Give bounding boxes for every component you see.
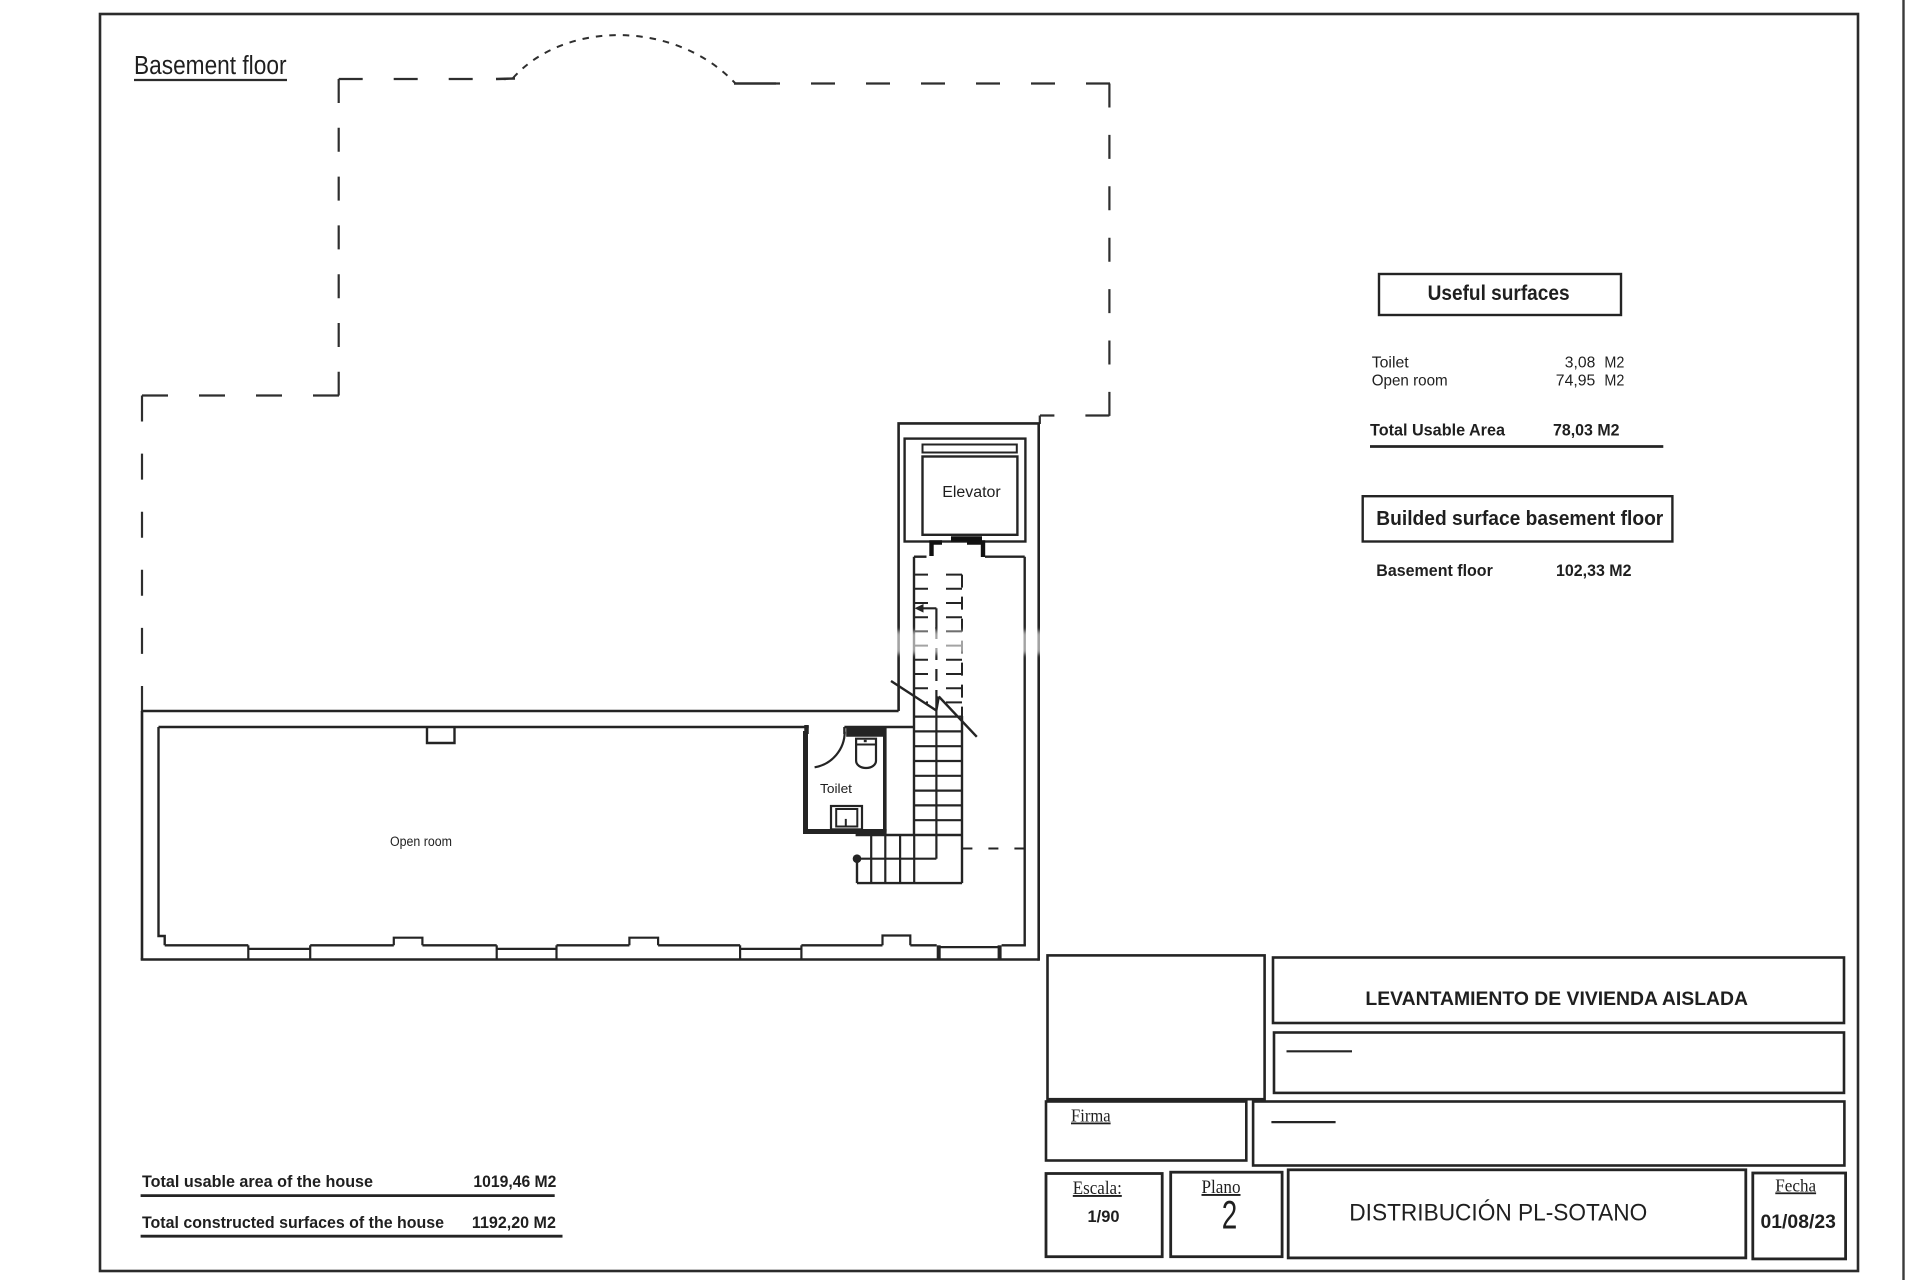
svg-text:Total constructed surfaces of: Total constructed surfaces of the house — [142, 1214, 444, 1232]
svg-text:1192,20 M2: 1192,20 M2 — [472, 1214, 556, 1232]
svg-text:Escala:: Escala: — [1073, 1178, 1122, 1199]
svg-text:Fecha: Fecha — [1775, 1175, 1816, 1195]
svg-text:LEVANTAMIENTO DE VIVIENDA AISL: LEVANTAMIENTO DE VIVIENDA AISLADA — [1365, 988, 1748, 1010]
svg-text:Elevator: Elevator — [942, 484, 1001, 501]
svg-text:3,08: 3,08 — [1565, 355, 1596, 372]
svg-text:01/08/23: 01/08/23 — [1761, 1212, 1836, 1233]
svg-text:Open room: Open room — [390, 834, 452, 849]
svg-text:Total usable area of the house: Total usable area of the house — [142, 1173, 373, 1191]
svg-text:2: 2 — [1222, 1194, 1238, 1238]
svg-text:Builded surface basement floor: Builded surface basement floor — [1376, 508, 1663, 530]
svg-text:74,95: 74,95 — [1556, 373, 1596, 390]
svg-text:102,33 M2: 102,33 M2 — [1556, 562, 1632, 580]
svg-text:Firma: Firma — [1071, 1106, 1111, 1126]
svg-text:Open room: Open room — [1372, 373, 1448, 390]
svg-text:M2: M2 — [1604, 373, 1624, 390]
svg-text:M2: M2 — [1604, 355, 1624, 372]
svg-text:DISTRIBUCIÓN PL-SOTANO: DISTRIBUCIÓN PL-SOTANO — [1349, 1200, 1647, 1227]
svg-text:Total Usable Area: Total Usable Area — [1370, 422, 1506, 440]
svg-text:78,03 M2: 78,03 M2 — [1553, 422, 1620, 440]
svg-text:Basement floor: Basement floor — [134, 52, 287, 80]
svg-text:1/90: 1/90 — [1088, 1208, 1120, 1226]
svg-text:Toilet: Toilet — [820, 782, 853, 796]
svg-text:Toilet: Toilet — [1372, 355, 1410, 372]
svg-text:Useful surfaces: Useful surfaces — [1428, 282, 1570, 305]
svg-text:Basement floor: Basement floor — [1376, 562, 1493, 580]
svg-text:1019,46 M2: 1019,46 M2 — [473, 1173, 556, 1191]
